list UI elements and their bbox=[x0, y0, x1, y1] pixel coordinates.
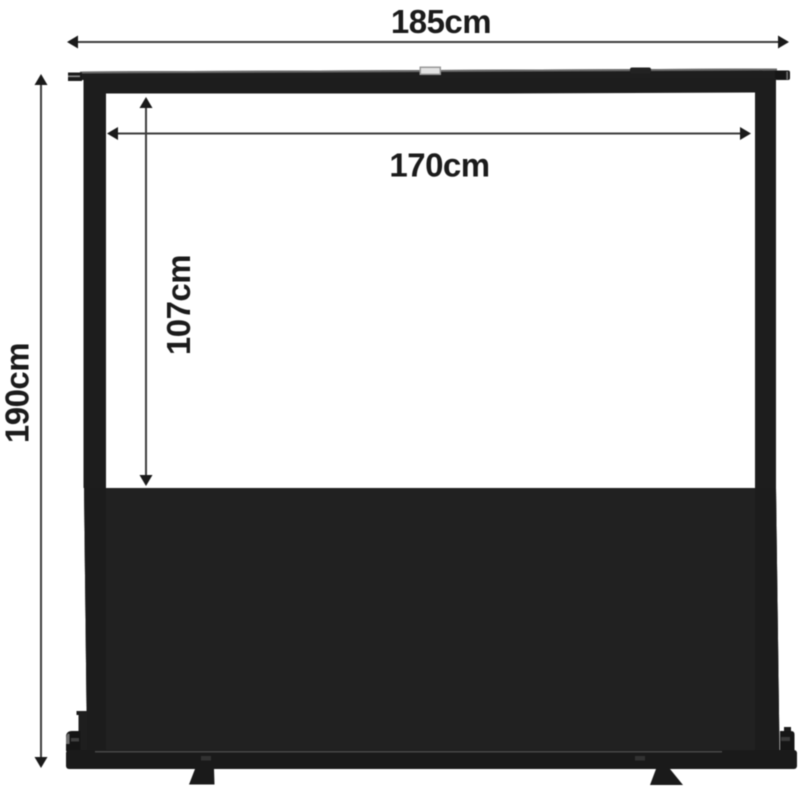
svg-text:107cm: 107cm bbox=[160, 255, 197, 355]
svg-text:185cm: 185cm bbox=[391, 3, 491, 40]
svg-text:170cm: 170cm bbox=[389, 147, 489, 184]
svg-text:190cm: 190cm bbox=[0, 343, 36, 443]
